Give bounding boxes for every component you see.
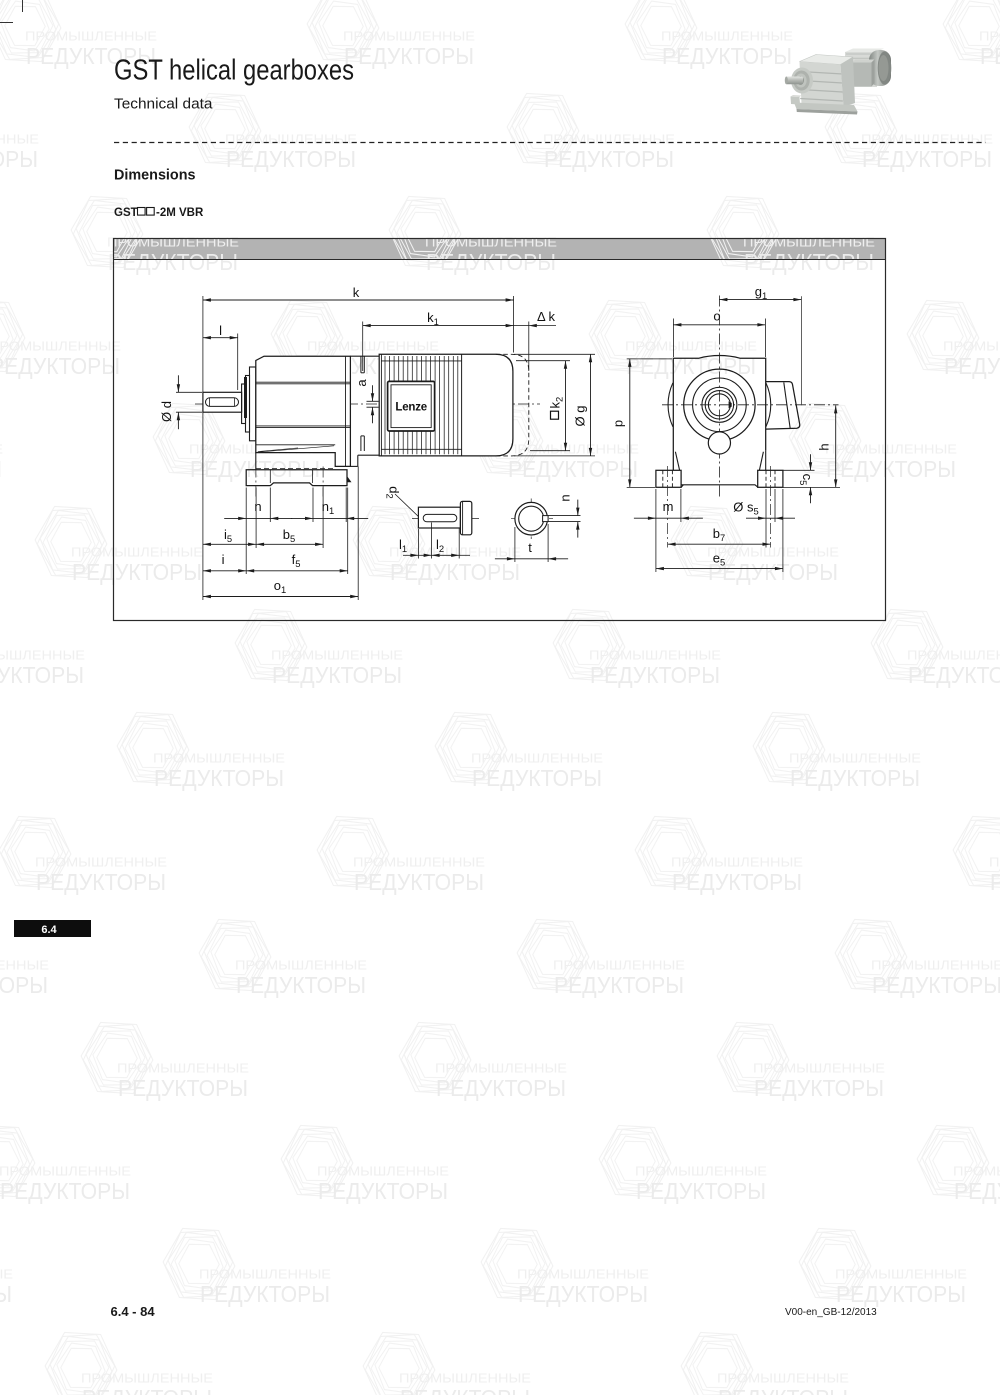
svg-text:V00-en_GB-12/2013: V00-en_GB-12/2013 <box>785 1307 877 1318</box>
svg-text:h: h <box>817 443 832 450</box>
svg-text:o: o <box>713 309 720 324</box>
svg-text:GST: GST <box>114 207 138 219</box>
svg-text:l: l <box>219 323 222 338</box>
svg-text:Dimensions: Dimensions <box>114 167 196 184</box>
svg-text:p: p <box>611 420 626 427</box>
svg-text:-2M VBR: -2M VBR <box>156 207 204 219</box>
svg-text:m: m <box>663 499 674 514</box>
svg-text:n: n <box>254 499 261 514</box>
svg-text:GST helical gearboxes: GST helical gearboxes <box>114 55 354 87</box>
svg-text:k: k <box>353 285 360 300</box>
svg-text:t: t <box>528 540 532 555</box>
svg-text:Ø g: Ø g <box>573 406 588 427</box>
svg-text:i: i <box>222 552 225 567</box>
svg-text:Technical data: Technical data <box>114 96 213 113</box>
svg-text:6.4: 6.4 <box>41 924 57 936</box>
svg-text:6.4 - 84: 6.4 - 84 <box>111 1304 156 1319</box>
svg-text:u: u <box>560 494 575 501</box>
svg-text:Δ k: Δ k <box>537 309 556 324</box>
svg-text:Lenze: Lenze <box>395 402 427 414</box>
svg-text:a: a <box>354 379 369 387</box>
svg-text:Ø d: Ø d <box>159 401 174 422</box>
